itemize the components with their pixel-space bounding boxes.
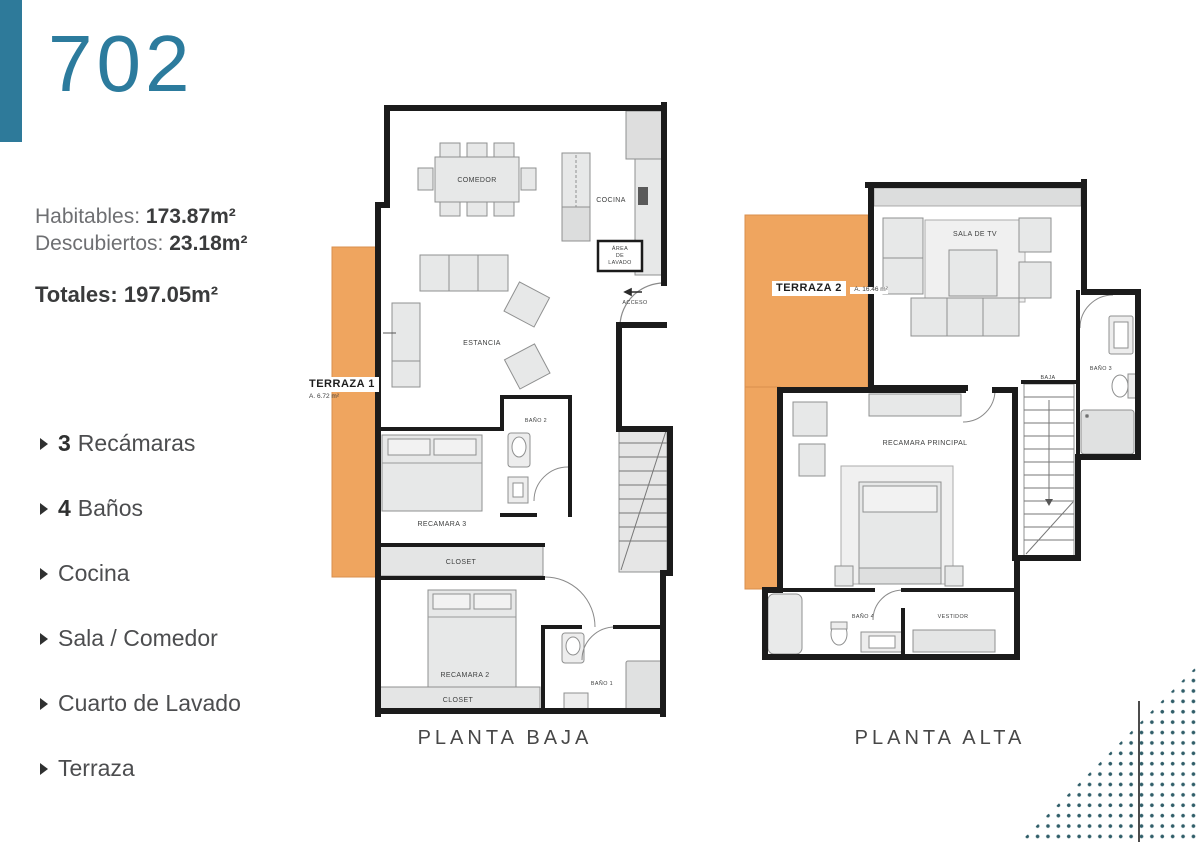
vertical-line-decoration (1138, 701, 1140, 842)
room-label-recamara3: RECAMARA 3 (417, 521, 466, 528)
feature-sala-comedor: Sala / Comedor (40, 625, 241, 652)
room-label-lavado-2: DE (616, 253, 624, 259)
room-label-lavado-3: LAVADO (608, 260, 631, 266)
terraza2-label: TERRAZA 2 A. 16.46 m² (772, 279, 888, 296)
feature-recamaras: 3 Recámaras (40, 430, 241, 457)
caption-planta-alta: PLANTA ALTA (735, 727, 1145, 750)
stairs-up (619, 429, 667, 572)
totales-line: Totales: 197.05m² (35, 281, 247, 308)
accent-bar (0, 0, 22, 142)
unit-number: 702 (48, 18, 193, 110)
caption-planta-baja: PLANTA BAJA (330, 727, 680, 750)
bullet-triangle-icon (40, 438, 48, 450)
bedroom3-furniture (382, 435, 482, 511)
floorplan-planta-alta: SALA DE TV BAJA BA (735, 170, 1145, 770)
room-label-acceso: ACCESO (622, 300, 647, 306)
floorplan-planta-baja: COMEDOR COCINA ÁREA DE LAVADO ESTANCIA (330, 95, 680, 760)
room-label-closet-a: CLOSET (446, 559, 477, 566)
room-label-lavado-1: ÁREA (612, 245, 628, 252)
descubiertos-line: Descubiertos: 23.18m² (35, 230, 247, 257)
feature-list: 3 Recámaras 4 Baños Cocina Sala / Comedo… (40, 430, 241, 820)
room-label-closet-b: CLOSET (443, 697, 474, 704)
feature-cuarto-lavado: Cuarto de Lavado (40, 690, 241, 717)
room-label-vestidor: VESTIDOR (938, 614, 969, 620)
vestidor-closet-strip (913, 630, 995, 652)
feature-cocina: Cocina (40, 560, 241, 587)
terraza1-label: TERRAZA 1 A. 6.72 m² (305, 375, 379, 401)
bullet-triangle-icon (40, 763, 48, 775)
room-label-recamara2: RECAMARA 2 (440, 672, 489, 679)
sala-top-ledge (874, 188, 1081, 206)
room-label-bano1: BAÑO 1 (591, 680, 613, 687)
feature-banos: 4 Baños (40, 495, 241, 522)
stairs-down (1024, 384, 1074, 556)
room-label-bano3: BAÑO 3 (1090, 365, 1112, 372)
terraza1-area (332, 247, 377, 577)
room-label-bano4: BAÑO 4 (852, 613, 874, 620)
room-label-sala-tv: SALA DE TV (953, 231, 997, 238)
bullet-triangle-icon (40, 503, 48, 515)
bullet-triangle-icon (40, 698, 48, 710)
brochure-page: 702 Habitables: 173.87m² Descubiertos: 2… (0, 0, 1200, 842)
bullet-triangle-icon (40, 568, 48, 580)
bullet-triangle-icon (40, 633, 48, 645)
room-label-estancia: ESTANCIA (463, 340, 501, 347)
room-label-recamara-principal: RECAMARA PRINCIPAL (883, 440, 968, 447)
area-summary: Habitables: 173.87m² Descubiertos: 23.18… (35, 203, 247, 308)
room-label-cocina: COCINA (596, 197, 626, 204)
feature-terraza: Terraza (40, 755, 241, 782)
habitables-line: Habitables: 173.87m² (35, 203, 247, 230)
room-label-comedor: COMEDOR (457, 177, 496, 184)
room-label-bano2: BAÑO 2 (525, 417, 547, 424)
